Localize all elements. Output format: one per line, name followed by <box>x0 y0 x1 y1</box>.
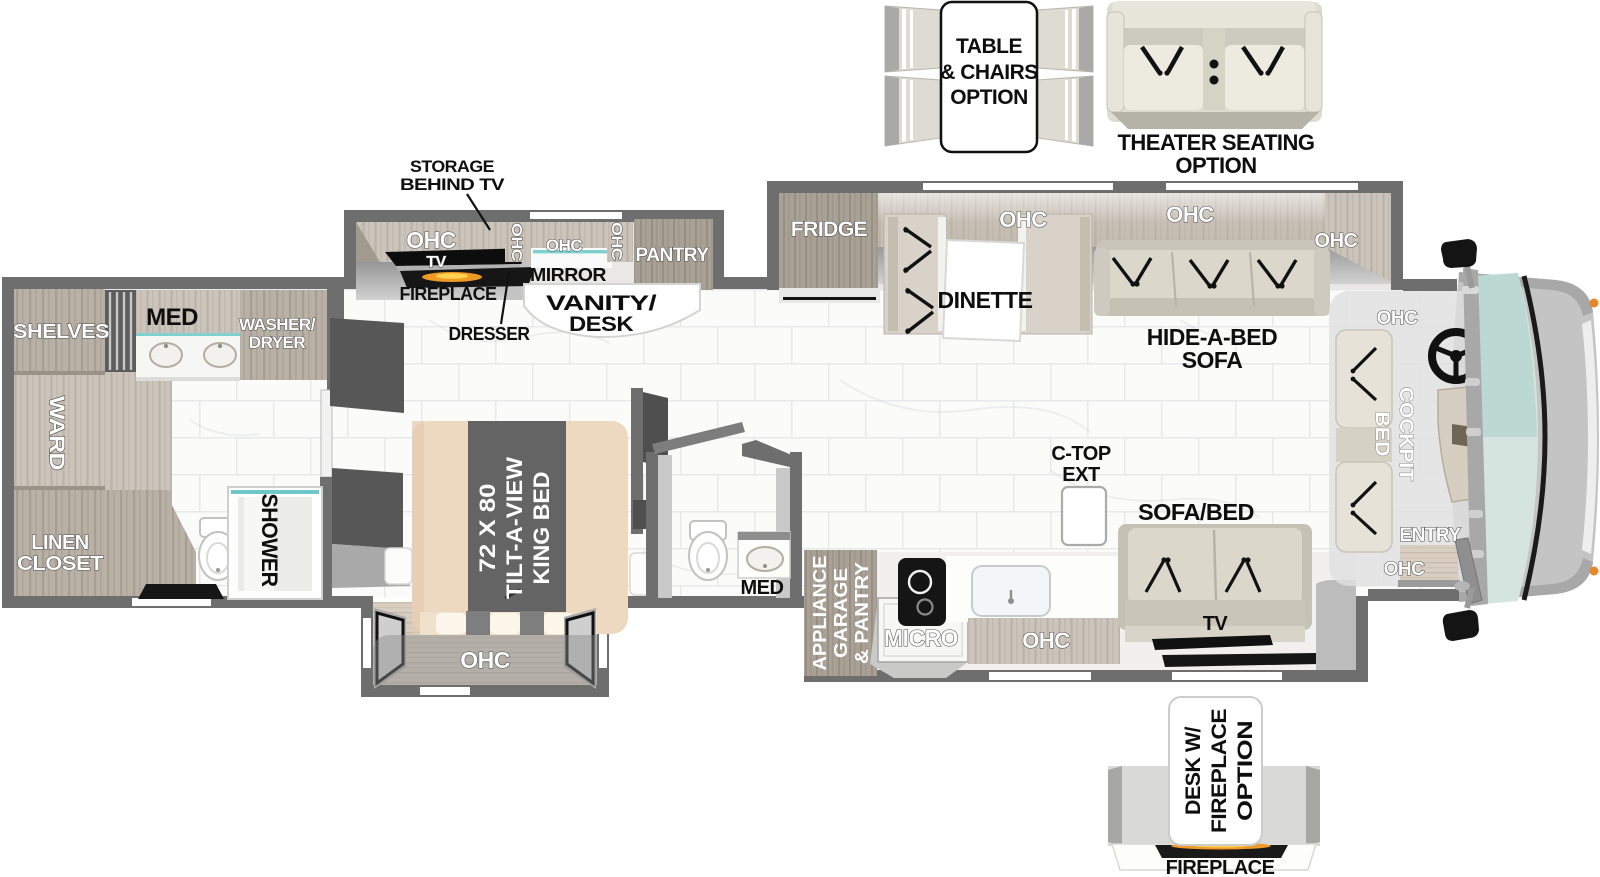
svg-text:DINETTE: DINETTE <box>938 287 1033 313</box>
svg-text:C-TOP: C-TOP <box>1051 443 1111 465</box>
svg-text:BEHIND TV: BEHIND TV <box>400 175 505 194</box>
svg-text:CLOSET: CLOSET <box>17 553 103 575</box>
svg-text:OHC: OHC <box>999 207 1047 232</box>
svg-text:SHELVES: SHELVES <box>13 321 109 343</box>
svg-text:LINEN: LINEN <box>31 532 89 554</box>
svg-text:DESK: DESK <box>569 313 633 336</box>
svg-text:WARD: WARD <box>45 396 68 470</box>
svg-text:WASHER/: WASHER/ <box>239 315 316 334</box>
svg-text:VANITY/: VANITY/ <box>546 292 657 315</box>
svg-text:OPTION: OPTION <box>1175 153 1256 178</box>
svg-text:OPTION: OPTION <box>950 86 1028 109</box>
svg-text:DRYER: DRYER <box>249 333 306 352</box>
svg-text:MICRO: MICRO <box>884 625 958 651</box>
svg-text:OHC: OHC <box>1377 308 1419 329</box>
svg-text:OHC: OHC <box>1166 202 1214 227</box>
svg-text:DRESSER: DRESSER <box>449 324 530 344</box>
svg-text:MED: MED <box>741 577 784 599</box>
svg-text:STORAGE: STORAGE <box>410 157 494 176</box>
svg-text:OHC: OHC <box>608 222 625 261</box>
svg-text:MIRROR: MIRROR <box>530 265 607 285</box>
svg-text:SOFA/BED: SOFA/BED <box>1138 499 1254 525</box>
svg-text:TV: TV <box>1203 613 1229 635</box>
svg-text:APPLIANCEGARAGE& PANTRY: APPLIANCEGARAGE& PANTRY <box>810 556 872 671</box>
svg-text:PANTRY: PANTRY <box>636 245 710 266</box>
svg-text:MED: MED <box>146 304 198 331</box>
svg-text:OHC: OHC <box>406 227 456 253</box>
svg-text:OHC: OHC <box>546 236 583 255</box>
svg-text:FRIDGE: FRIDGE <box>791 218 868 241</box>
svg-text:TABLE: TABLE <box>956 35 1022 58</box>
svg-text:OHC: OHC <box>508 223 525 262</box>
svg-text:FIREPLACE: FIREPLACE <box>1166 857 1275 877</box>
svg-text:OHC: OHC <box>1022 628 1070 653</box>
svg-text:OHC: OHC <box>460 647 510 673</box>
svg-text:SOFA: SOFA <box>1182 347 1243 373</box>
svg-text:SHOWER: SHOWER <box>257 494 282 588</box>
svg-text:ENTRY: ENTRY <box>1399 525 1461 546</box>
svg-text:EXT: EXT <box>1062 464 1100 486</box>
svg-text:FIREPLACE: FIREPLACE <box>400 284 497 304</box>
svg-text:DESK W/FIREPLACEOPTION: DESK W/FIREPLACEOPTION <box>1182 708 1257 833</box>
svg-text:OHC: OHC <box>1384 559 1426 580</box>
svg-text:TV: TV <box>426 254 446 271</box>
svg-text:THEATER SEATING: THEATER SEATING <box>1117 130 1314 155</box>
svg-text:& CHAIRS: & CHAIRS <box>940 61 1038 84</box>
svg-text:OHC: OHC <box>1315 230 1358 252</box>
